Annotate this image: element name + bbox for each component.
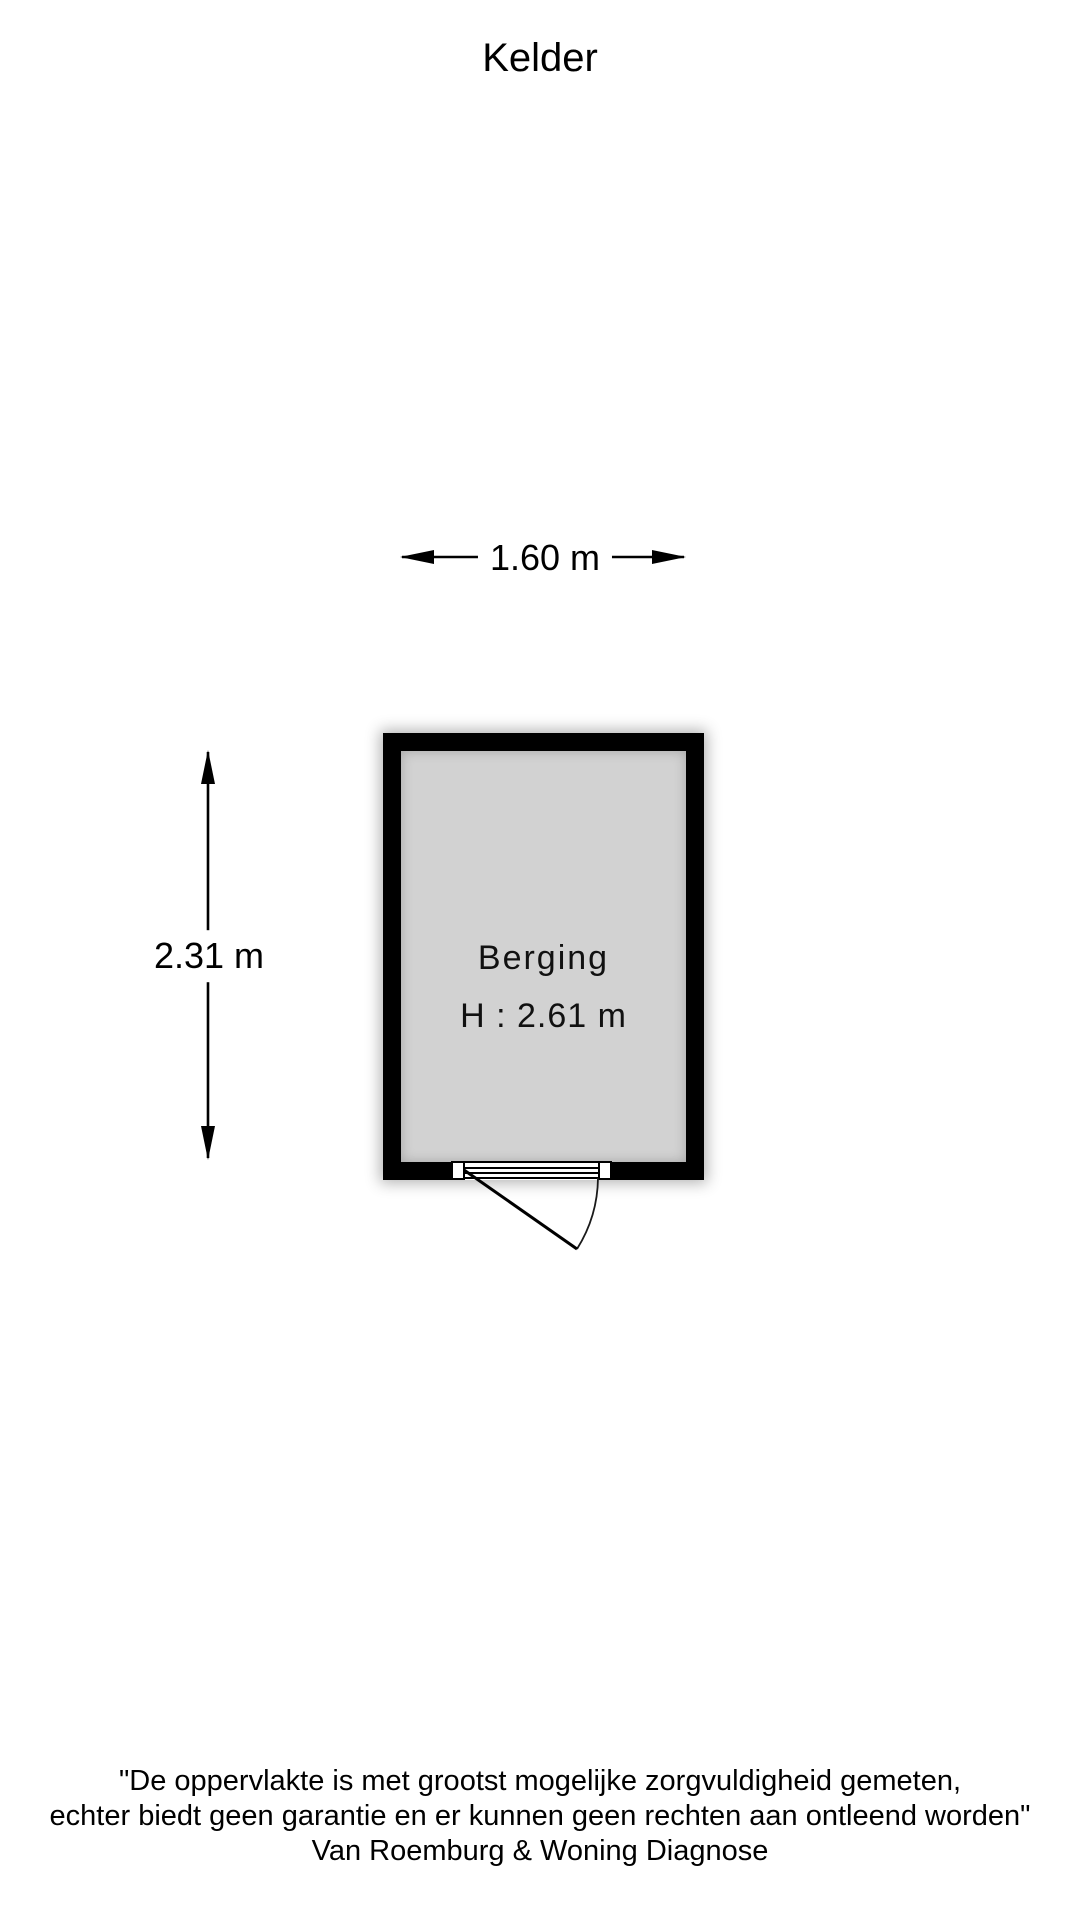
room-name-label: Berging [401, 939, 686, 978]
door-leaf [464, 1170, 577, 1249]
disclaimer-line-1: "De oppervlakte is met grootst mogelijke… [0, 1764, 1080, 1799]
disclaimer-line-2: echter biedt geen garantie en er kunnen … [0, 1799, 1080, 1834]
width-dimension-label: 1.60 m [478, 538, 612, 578]
door-swing-arc [577, 1178, 598, 1249]
depth-dimension-label: 2.31 m [150, 930, 268, 982]
company-name: Van Roemburg & Woning Diagnose [0, 1834, 1080, 1869]
arrowhead-right-icon [652, 550, 686, 564]
footer-disclaimer: "De oppervlakte is met grootst mogelijke… [0, 1764, 1080, 1869]
door-swing [440, 1150, 640, 1280]
room-berging-floor: Berging H : 2.61 m [401, 751, 686, 1162]
arrowhead-left-icon [400, 550, 434, 564]
page-title: Kelder [0, 36, 1080, 81]
room-ceiling-height-label: H : 2.61 m [401, 997, 686, 1036]
room-berging-walls: Berging H : 2.61 m [383, 733, 704, 1180]
arrowhead-up-icon [201, 750, 215, 784]
floorplan-page: Kelder 1.60 m 2.31 m Berging H : 2.61 m [0, 0, 1080, 1920]
arrowhead-down-icon [201, 1126, 215, 1160]
